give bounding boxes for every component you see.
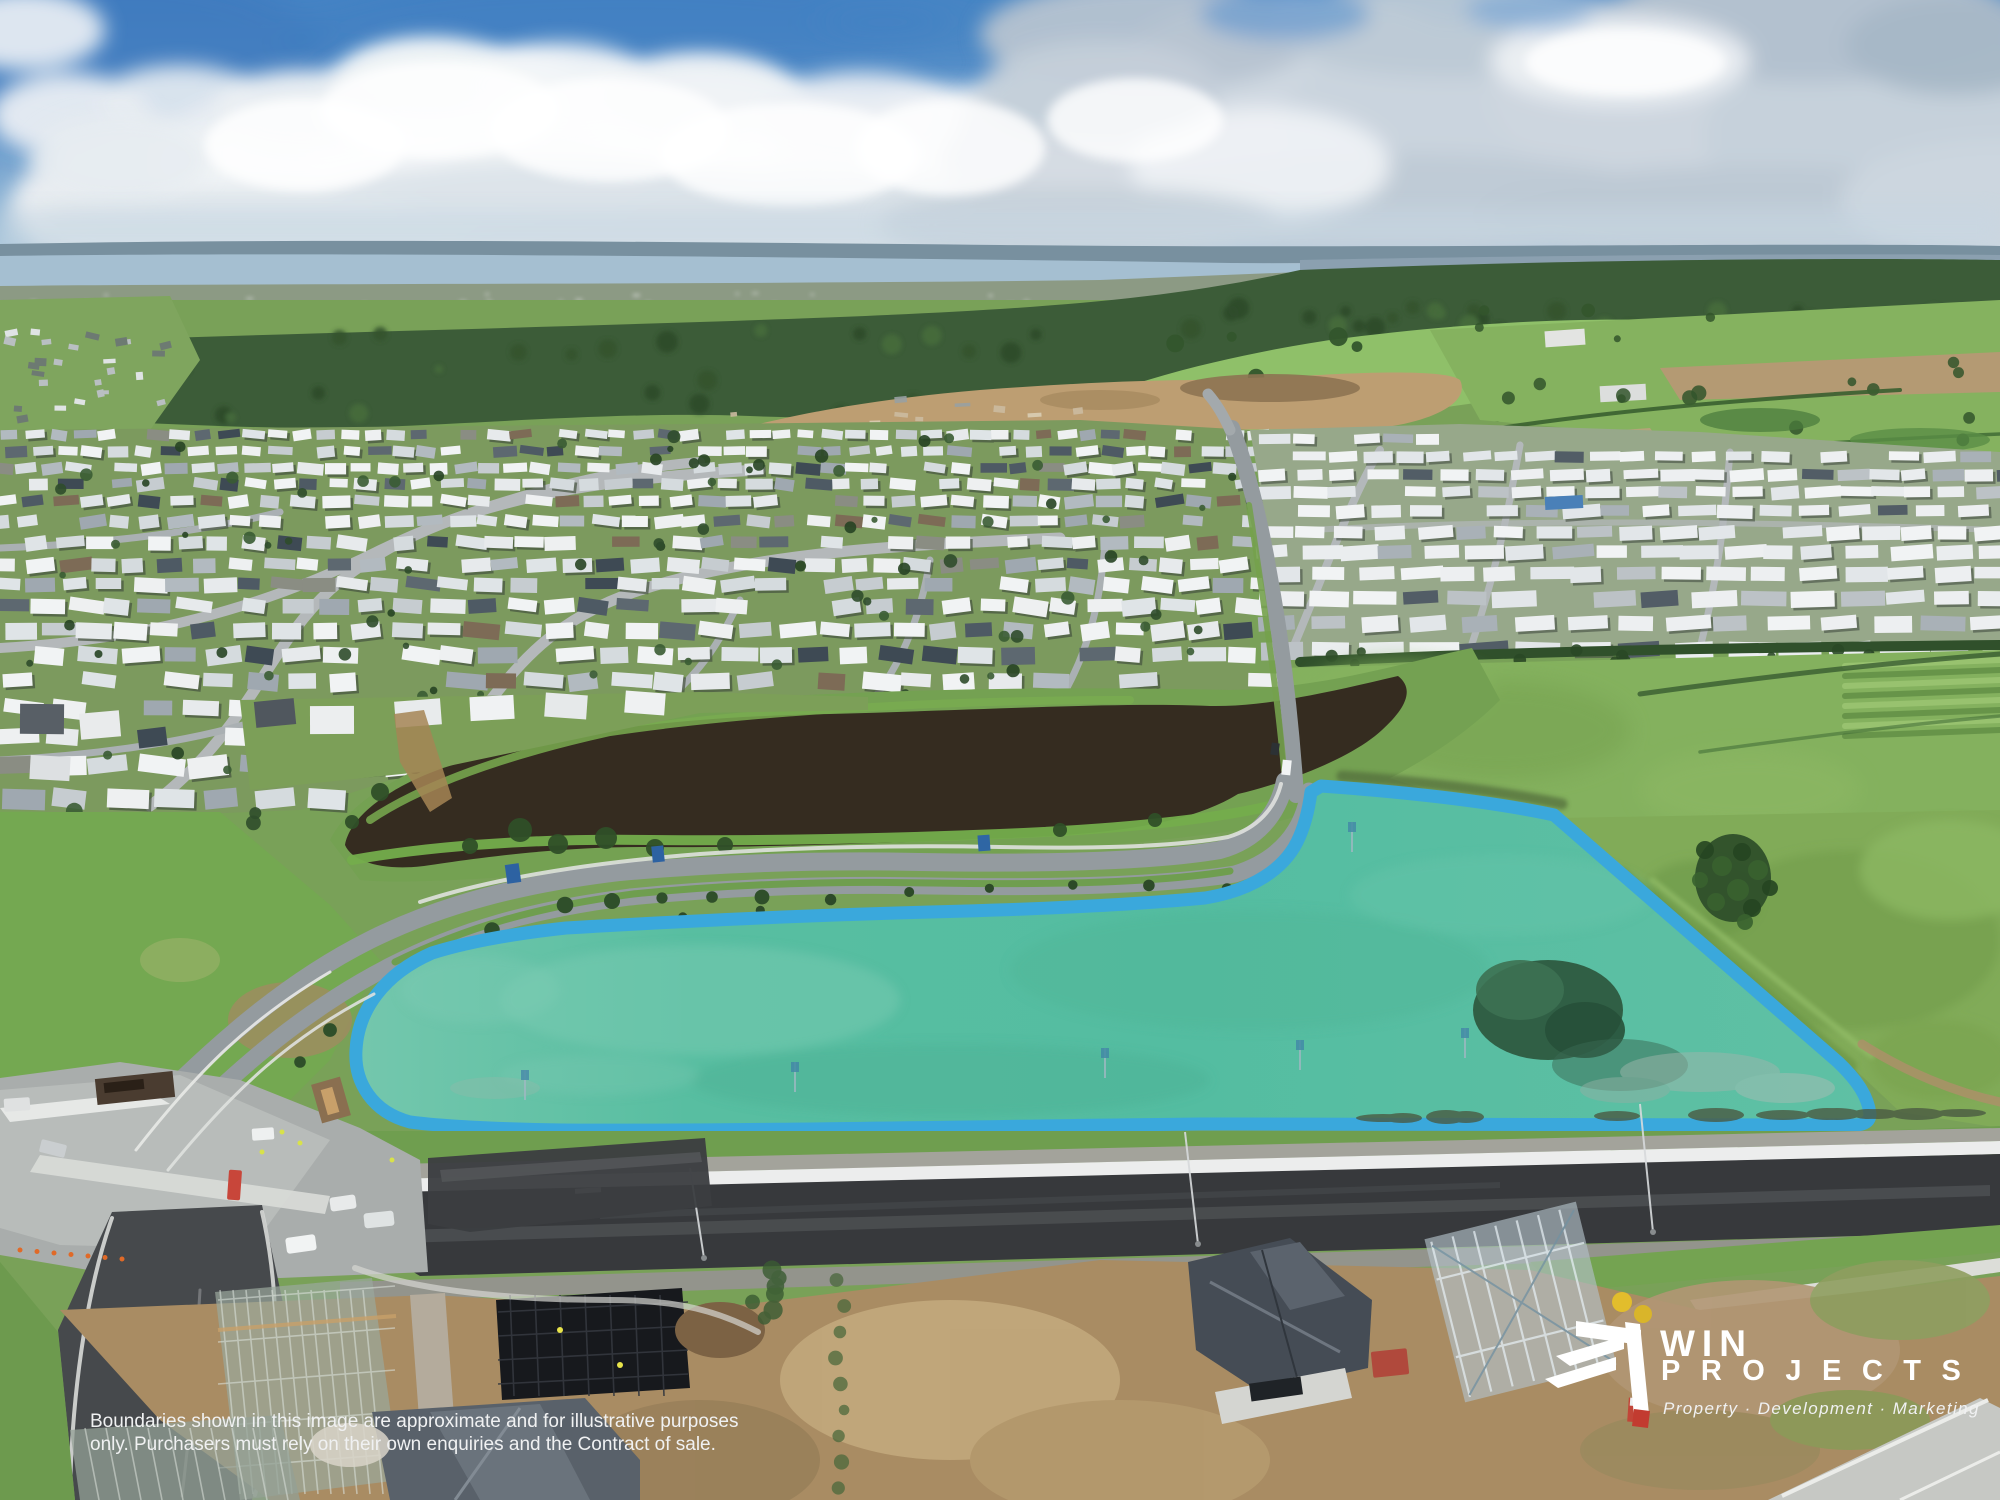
svg-text:Boundaries shown in this image: Boundaries shown in this image are appro… <box>90 1411 738 1432</box>
svg-text:Property · Development · Marke: Property · Development · Marketing <box>1663 1399 1980 1418</box>
svg-text:PROJECTS: PROJECTS <box>1661 1355 1981 1387</box>
svg-text:only. Purchasers must rely on: only. Purchasers must rely on their own … <box>90 1434 716 1455</box>
